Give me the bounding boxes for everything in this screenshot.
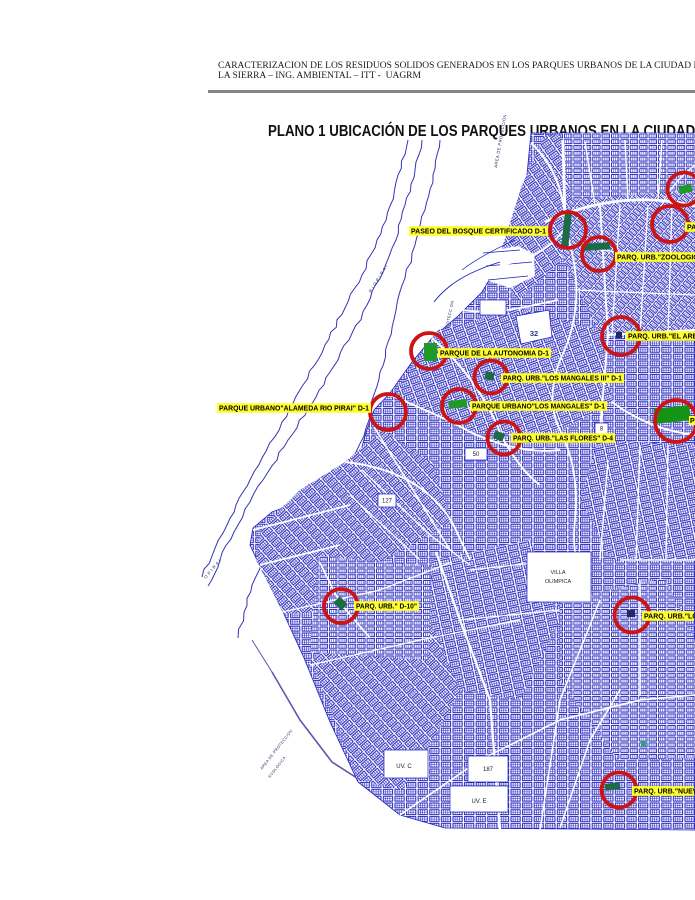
svg-text:PA: PA: [687, 225, 695, 232]
svg-text:PARQ. URB."LOS: PARQ. URB."LOS: [644, 614, 695, 621]
svg-text:P: P: [690, 418, 695, 425]
svg-text:PARQ. URB."LOS MANGALES III" D: PARQ. URB."LOS MANGALES III" D-1: [503, 376, 622, 383]
svg-text:PARQUE URBANO"ALAMEDA RIO PIRA: PARQUE URBANO"ALAMEDA RIO PIRAI" D-1: [219, 406, 369, 413]
svg-text:AREA DE PROTECCION ECOLOGICA: AREA DE PROTECCION ECOLOGICA: [493, 115, 513, 168]
svg-text:PASEO DEL BOSQUE CERTIFICADO: PASEO DEL BOSQUE CERTIFICADO D-1: [411, 229, 546, 236]
svg-text:UV. E: UV. E: [471, 799, 486, 805]
svg-text:PARQ. URB." D-10": PARQ. URB." D-10": [356, 604, 417, 611]
svg-text:VILLA: VILLA: [551, 570, 566, 576]
svg-text:R I O P I R A I: R I O P I R A I: [368, 264, 389, 294]
svg-text:187: 187: [483, 767, 494, 773]
svg-text:PARQ. URB."NUEVO: PARQ. URB."NUEVO: [634, 789, 695, 796]
svg-text:UV. C: UV. C: [396, 764, 412, 770]
svg-text:PARQ. URB."ZOOLOGICO: PARQ. URB."ZOOLOGICO: [617, 255, 695, 262]
svg-text:32: 32: [530, 329, 538, 338]
svg-text:50: 50: [473, 452, 480, 458]
svg-text:PARQUE DE LA AUTONOMIA D-1: PARQUE DE LA AUTONOMIA D-1: [440, 351, 549, 358]
svg-text:PARQUE URBANO"LOS MANGALES" D-: PARQUE URBANO"LOS MANGALES" D-1: [472, 404, 605, 411]
svg-text:PARQ. URB."LAS FLORES" D-4: PARQ. URB."LAS FLORES" D-4: [513, 436, 613, 443]
svg-text:PARQ. URB."EL ARE: PARQ. URB."EL ARE: [628, 334, 695, 341]
svg-text:127: 127: [382, 499, 393, 505]
svg-text:OLIMPICA: OLIMPICA: [545, 579, 572, 585]
svg-text:O P I R A I: O P I R A I: [203, 558, 222, 580]
